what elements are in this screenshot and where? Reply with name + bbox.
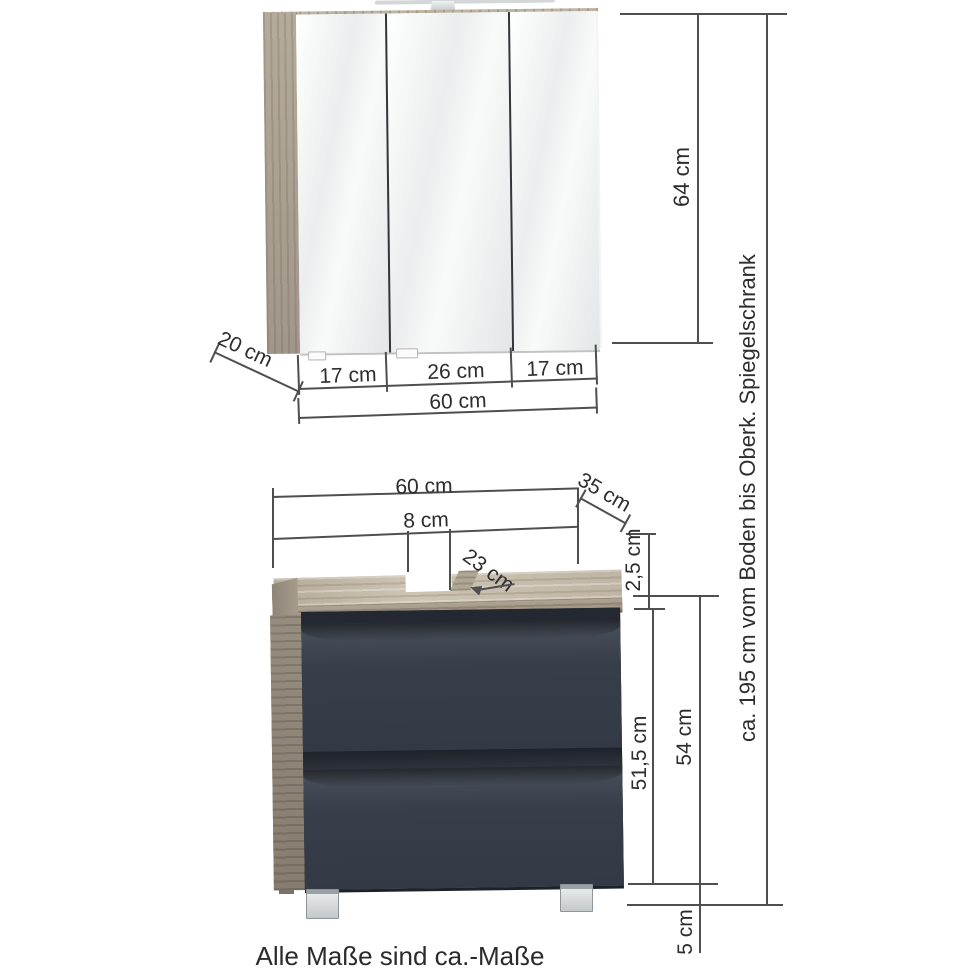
drawer-top	[301, 620, 622, 752]
label-notch-offset: 8 cm	[386, 510, 467, 533]
dim-54-line	[699, 596, 701, 953]
label-top-thickness: 2,5 cm	[624, 525, 646, 595]
dim-64-bottom-tick	[612, 342, 713, 344]
label-mirror-width: 60 cm	[418, 391, 499, 414]
dim-54-bottom-tick	[628, 883, 718, 885]
mirror-door-center	[387, 12, 513, 352]
lamp-bar	[375, 0, 555, 5]
mirror-doors	[296, 11, 600, 356]
dim-54-top-tick	[633, 595, 719, 597]
product-dimension-diagram: 64 cm ca. 195 cm vom Boden bis Oberk. Sp…	[0, 0, 970, 971]
drawer-bottom	[303, 766, 624, 893]
disclaimer-note: Alle Maße sind ca.-Maße	[240, 941, 560, 971]
label-mirror-height: 64 cm	[670, 117, 694, 237]
label-overall-height: ca. 195 cm vom Boden bis Oberk. Spiegels…	[736, 282, 762, 742]
cabinet-foot-clip	[396, 348, 418, 358]
dim-195-line	[766, 14, 768, 905]
floor-line	[627, 904, 783, 906]
drawer-handle-groove	[303, 766, 622, 794]
cabinet-side-panel	[263, 13, 301, 354]
dim-8-tick-right	[449, 529, 451, 590]
foot-shadow	[561, 885, 592, 889]
mirror-cabinet	[263, 0, 602, 364]
cabinet-foot-left	[306, 889, 339, 919]
label-door-left: 17 cm	[308, 365, 389, 388]
label-door-center: 26 cm	[416, 361, 497, 384]
mirror-door-right	[510, 11, 600, 351]
dim-top-tick	[620, 13, 787, 15]
dim-8-tick-left	[407, 531, 409, 572]
vanity-side-panel	[270, 615, 306, 890]
label-vanity-width: 60 cm	[384, 476, 465, 498]
vanity-cabinet	[270, 608, 624, 893]
dim-64-line	[697, 14, 699, 343]
dim-515-line	[652, 609, 654, 884]
cabinet-foot-right	[560, 884, 593, 912]
dim-vanity-60-ext-left	[272, 488, 274, 568]
mirror-door-left	[296, 14, 390, 354]
cabinet-foot-clip	[308, 351, 326, 360]
drawer-handle-groove	[301, 620, 620, 648]
vanity-front	[301, 608, 624, 890]
siphon-notch	[405, 570, 452, 592]
dim-515-top-tick	[634, 608, 665, 610]
foot-shadow	[307, 890, 338, 894]
label-front-height: 51,5 cm	[630, 708, 652, 798]
label-door-right: 17 cm	[515, 358, 596, 381]
dim-25-line	[648, 534, 650, 610]
label-feet-height: 5 cm	[676, 902, 698, 962]
label-vanity-height: 54 cm	[675, 692, 697, 782]
